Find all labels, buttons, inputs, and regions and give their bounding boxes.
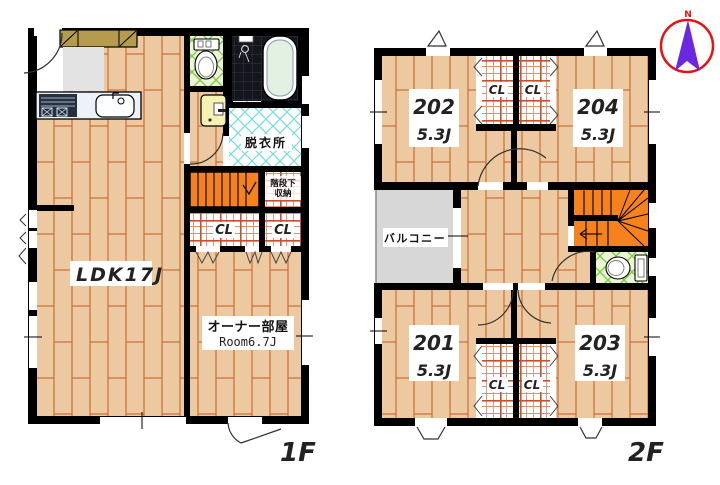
dressing-room-label: 脱衣所 (245, 135, 287, 150)
room-202-number: 202 (413, 95, 455, 119)
balcony-label: バルコニー (384, 232, 446, 245)
dressing-door-opening (223, 136, 229, 166)
stairs-1f (190, 172, 259, 207)
entrance-floor (37, 36, 63, 92)
ldk-wall-stub (37, 205, 74, 211)
vent-icon (586, 31, 604, 46)
floor-2f-label: 2F (628, 438, 664, 468)
kitchen-cabinet (60, 30, 137, 47)
bathroom-1f (223, 28, 309, 108)
door-opening (518, 283, 545, 290)
room-202-size: 5.3J (417, 125, 451, 144)
vent-icon (580, 427, 602, 438)
floor-1f-label: 1F (280, 438, 316, 468)
window (302, 116, 309, 148)
stove (39, 94, 77, 117)
closet-label: CL (489, 83, 505, 97)
window (29, 231, 37, 248)
window (302, 300, 309, 365)
window-swing-mark (19, 248, 26, 264)
window-swing-mark (20, 214, 26, 226)
stairs-entry-opening (568, 226, 574, 246)
under-stair-storage-label-2: 収納 (274, 188, 291, 199)
window (649, 258, 656, 276)
compass: N (661, 10, 713, 72)
room-204-number: 204 (577, 95, 619, 119)
floor-2f-plan: 202 5.3J 204 5.3J 201 5.3J 203 5.3J CL C… (370, 31, 664, 468)
closet-label: CL (215, 223, 233, 238)
washbasin (201, 95, 226, 126)
toilet-1f (194, 39, 219, 79)
under-stair-storage-label-1: 階段下 (270, 178, 296, 189)
vent-icon (428, 31, 446, 46)
ldk-label: LDK17J (76, 264, 164, 286)
window-swing-mark (20, 232, 26, 244)
shower-unit (239, 35, 253, 42)
owner-door-leaf (241, 429, 281, 443)
compass-needle-icon (675, 20, 700, 71)
room-201-number: 201 (413, 331, 455, 355)
window (302, 76, 309, 104)
window (415, 418, 447, 426)
window (649, 203, 656, 228)
closet-label: CL (489, 378, 505, 392)
owner-door-arc (228, 423, 241, 443)
balcony-window (453, 208, 461, 268)
room-201-size: 5.3J (417, 361, 451, 380)
floor-plan-canvas: LDK17J オーナー部屋 Room6.7J 脱衣所 階段下 収納 CL CL … (0, 0, 720, 485)
door-opening (527, 182, 548, 190)
entrance-door-opening (34, 28, 62, 36)
vent-icon (417, 427, 445, 439)
floor-plan-page: LDK17J オーナー部屋 Room6.7J 脱衣所 階段下 収納 CL CL … (0, 0, 720, 485)
closet-label: CL (524, 378, 540, 392)
window (100, 417, 186, 424)
room-204-size: 5.3J (581, 125, 615, 144)
window (426, 48, 450, 56)
room-203-number: 203 (579, 331, 621, 355)
door-opening (483, 283, 513, 290)
window (578, 418, 602, 426)
compass-north-label: N (684, 10, 692, 20)
closet-label: CL (525, 83, 541, 97)
owner-room-name: オーナー部屋 (207, 319, 288, 335)
closet-label: CL (274, 223, 292, 238)
window (29, 210, 37, 228)
window (29, 316, 37, 368)
owner-room-size: Room6.7J (219, 335, 277, 349)
owner-room-door-opening (228, 417, 262, 424)
window (29, 282, 37, 310)
door-opening (478, 182, 503, 190)
stairs-2f (574, 190, 648, 246)
ldk-hall-door-opening (184, 133, 190, 164)
room-203-size: 5.3J (583, 361, 617, 380)
window (584, 48, 607, 56)
kitchen-sink (96, 93, 134, 117)
refrigerator-space (63, 47, 104, 91)
floor-1f-plan: LDK17J オーナー部屋 Room6.7J 脱衣所 階段下 収納 CL CL … (19, 28, 316, 468)
